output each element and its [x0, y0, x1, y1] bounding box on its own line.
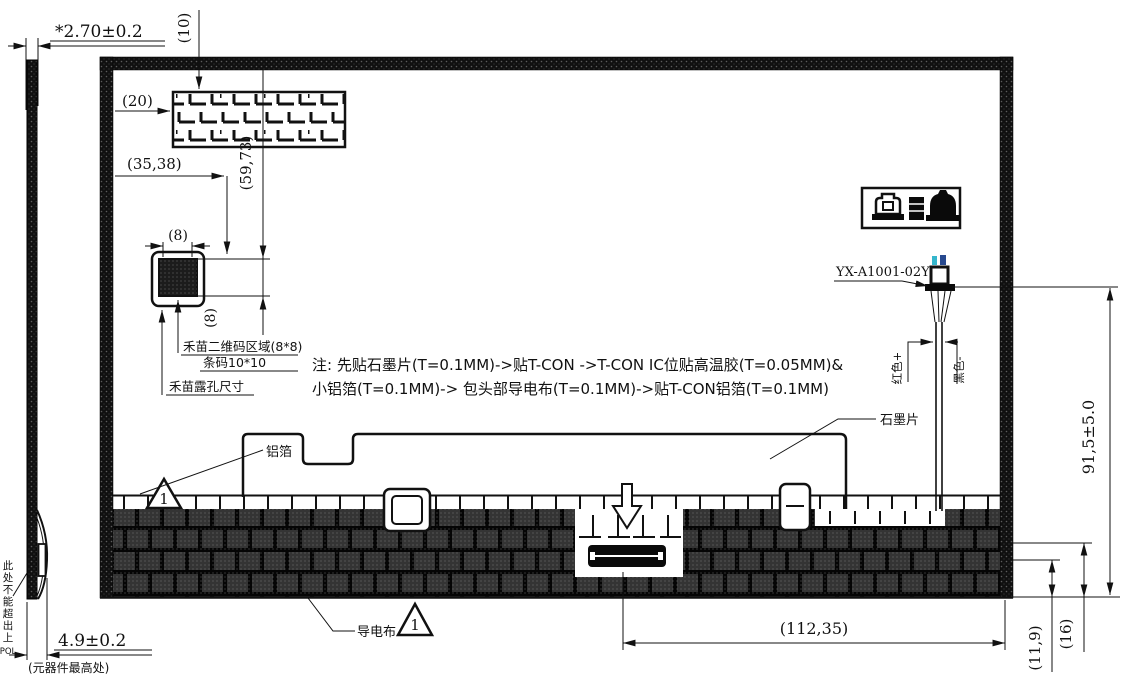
edge-note-char: 不 — [3, 584, 14, 596]
conductive-cloth-region — [113, 509, 1000, 597]
panel-side-bar — [27, 60, 37, 599]
marker-number: 1 — [410, 616, 420, 634]
cable-length-dim-text: 91,5±5.0 — [1079, 400, 1098, 474]
connector-detail-box — [862, 188, 960, 228]
cable-connector-base — [925, 284, 955, 291]
dim-59-73-text: (59,73) — [237, 136, 255, 191]
graphite-label: 石墨片 — [880, 413, 919, 428]
tape-piece-1 — [384, 489, 430, 531]
cable-connector-housing — [931, 267, 948, 284]
dim-11-9-text: (11,9) — [1026, 625, 1044, 670]
edge-note-char: 超 — [3, 607, 14, 620]
height-dim-text: 4.9±0.2 — [58, 631, 126, 651]
bottom-connector — [588, 545, 666, 567]
edge-note-char: 处 — [3, 572, 14, 584]
cloth-label: 导电布 — [357, 625, 396, 640]
edge-note-char: 此 — [3, 559, 14, 572]
cable-part-no: YX-A1001-02Y — [835, 265, 930, 280]
connector-glyph-2 — [909, 197, 924, 220]
engineering-drawing: *2.70±0.2 4.9±0.2 (元器件最高处) 此 处 不 能 超 出 上… — [0, 0, 1127, 681]
qr-area-label: 禾苗二维码区域(8*8) — [183, 339, 302, 354]
tape-piece-2 — [780, 484, 810, 530]
triangle-marker-2: 1 — [398, 604, 432, 635]
connector-glyph-1 — [872, 194, 904, 220]
dim-20-text: (20) — [122, 92, 153, 110]
graphite-sheet-outline — [243, 434, 846, 509]
panel-top-band — [100, 57, 1013, 70]
note-line-2: 小铝箔(T=0.1MM)-> 包头部导电布(T=0.1MM)->贴T-CON铝箔… — [312, 380, 829, 398]
marker-number: 1 — [159, 490, 169, 508]
triangle-marker-1: 1 — [147, 479, 181, 508]
backlight-cable — [925, 255, 955, 511]
edge-note-pol: POL — [0, 647, 17, 657]
dim-16-text: (16) — [1057, 619, 1075, 650]
dimension-11-9: (11,9) — [1008, 560, 1060, 672]
panel-right-band — [1000, 57, 1013, 598]
qr-dim-height-text: (8) — [203, 308, 219, 328]
label-block — [173, 92, 345, 147]
thickness-dim-text: *2.70±0.2 — [55, 22, 143, 42]
qr-hole-label: 禾苗露孔尺寸 — [169, 379, 244, 394]
note-line-1: 注: 先贴石墨片(T=0.1MM)->贴T-CON ->T-CON IC位贴高温… — [312, 356, 844, 374]
edge-note-char: 能 — [3, 595, 14, 608]
wire-black-label: 黑色- — [952, 356, 966, 383]
edge-note-char: 出 — [3, 619, 14, 632]
edge-note-char: 上 — [3, 632, 14, 644]
wire-mark-cyan — [932, 256, 937, 265]
edge-note-vertical: 此 处 不 能 超 出 上 POL — [0, 559, 27, 657]
foil-label: 铝箔 — [266, 444, 292, 460]
qr-dim-width-text: (8) — [168, 228, 188, 244]
side-connector-profile — [39, 544, 46, 576]
wire-mark-blue — [940, 255, 946, 265]
dim-10-text: (10) — [175, 13, 193, 44]
bottom-width-dim-text: (112,35) — [780, 619, 848, 638]
qr-barcode-label: 条码10*10 — [203, 355, 266, 370]
dim-35-38-text: (35,38) — [127, 155, 182, 173]
qr-code-detail: (8) (8) 禾苗二维码区域(8*8) 条码10*10 禾苗露孔尺寸 — [145, 228, 302, 395]
process-note: 注: 先贴石墨片(T=0.1MM)->贴T-CON ->T-CON IC位贴高温… — [312, 356, 844, 398]
panel-left-band — [100, 57, 113, 598]
wire-red-label: 红色+ — [890, 352, 904, 385]
height-note-text: (元器件最高处) — [28, 660, 109, 675]
